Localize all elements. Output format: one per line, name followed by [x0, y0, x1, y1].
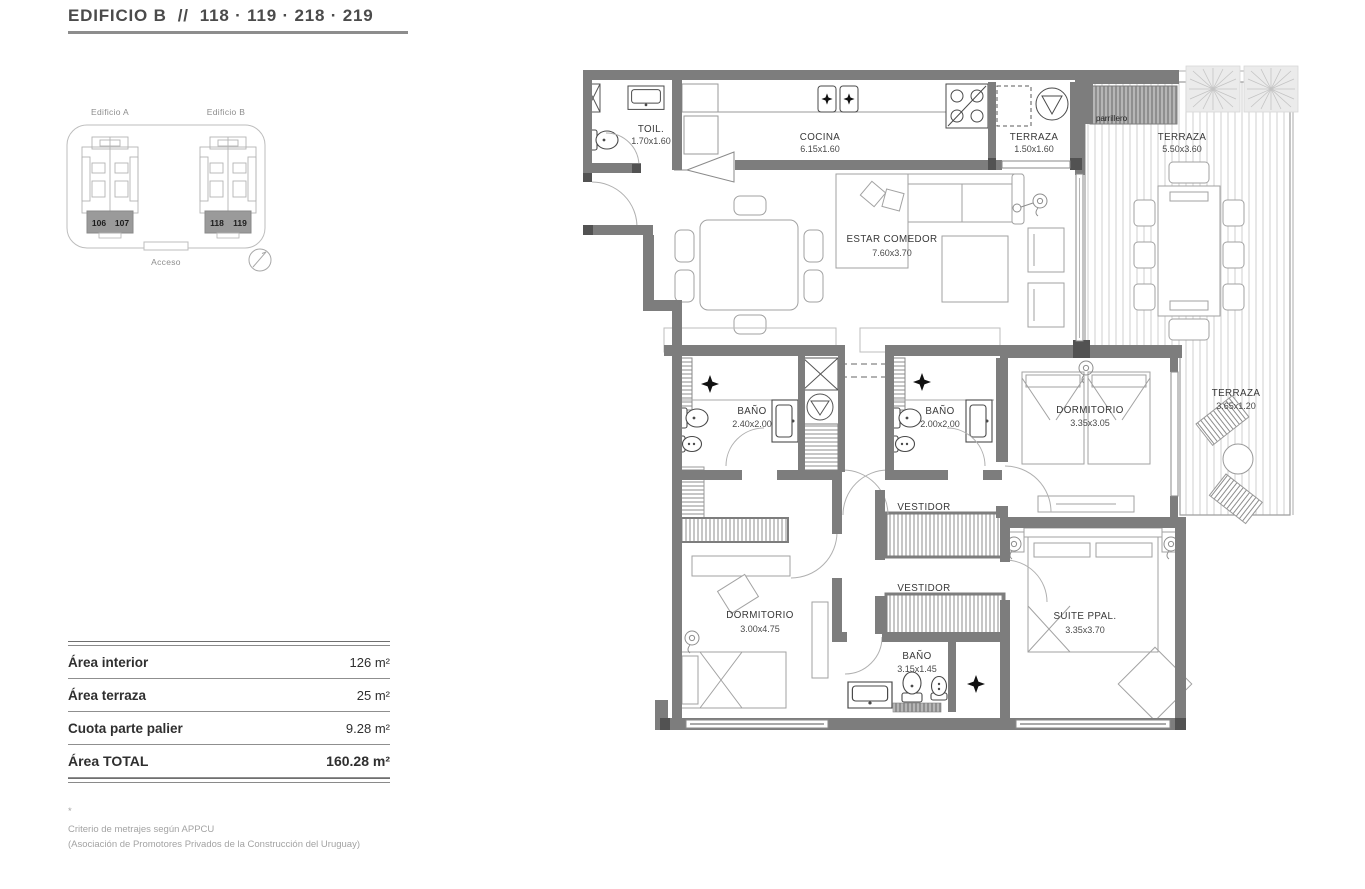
building-b-footprint: 118 119 [200, 137, 256, 238]
room-dims: 1.50x1.60 [1014, 144, 1054, 154]
floorplan-sheet: EDIFICIO B // 118 · 119 · 218 · 219 Edif… [0, 0, 1365, 889]
room-label: BAÑO [902, 651, 931, 662]
wall-lamp-icon [685, 631, 699, 653]
north-compass-icon [249, 249, 271, 271]
building-a-label: Edificio A [91, 107, 129, 117]
room-label: SUITE PPAL. [1053, 611, 1116, 622]
title-rule [68, 31, 408, 34]
footnote-line2: (Asociación de Promotores Privados de la… [68, 838, 390, 852]
room-label: TERRAZA [1010, 132, 1059, 143]
cooktop-icons [818, 84, 988, 128]
room-dims: 3.35x3.70 [1065, 625, 1105, 635]
room-label: DORMITORIO [1056, 405, 1124, 416]
bedroom1-furniture [676, 467, 828, 708]
parrillero-label: parrillero [1096, 114, 1128, 123]
closet-vestidor-1 [886, 513, 1004, 557]
area-row-value: 25 m² [357, 688, 390, 703]
armchairs [1028, 228, 1064, 327]
site-locator-diagram: Edificio A Edificio B 106 107 118 119 Ac… [62, 100, 292, 285]
area-row-value: 9.28 m² [346, 721, 390, 736]
room-dims: 3.65x1.20 [1216, 401, 1256, 411]
room-dims: 1.70x1.60 [631, 136, 671, 146]
unit-number: 118 [210, 218, 224, 228]
area-row-label: Área interior [68, 655, 148, 670]
access-label: Acceso [151, 257, 181, 267]
dining-set [675, 196, 823, 334]
room-label: ESTAR COMEDOR [846, 234, 937, 245]
bedroom2-furniture [1022, 372, 1150, 512]
table-row: Área terraza 25 m² [68, 679, 390, 712]
page-title: EDIFICIO B // 118 · 119 · 218 · 219 [68, 6, 374, 26]
bath3-fixtures [848, 672, 985, 712]
room-label: VESTIDOR [897, 502, 950, 513]
tree-icon [1244, 66, 1298, 112]
room-label: COCINA [800, 132, 841, 143]
unit-number: 106 [92, 218, 106, 228]
bath1-fixtures [676, 358, 798, 452]
room-dims: 6.15x1.60 [800, 144, 840, 154]
room-label: DORMITORIO [726, 610, 794, 621]
kitchen-door [674, 152, 734, 182]
room-label: TERRAZA [1212, 388, 1261, 399]
footnote: * Criterio de metrajes según APPCU (Asoc… [68, 805, 390, 852]
room-dims: 3.15x1.45 [897, 664, 937, 674]
room-dims: 2.00x2.00 [920, 419, 960, 429]
area-table: Área interior 126 m² Área terraza 25 m² … [68, 641, 390, 852]
stove-icon [946, 84, 988, 128]
footnote-mark: * [68, 805, 390, 819]
area-row-label: Cuota parte palier [68, 721, 183, 736]
area-row-label: Área terraza [68, 688, 146, 703]
room-label: TOIL. [638, 124, 664, 135]
room-dims: 7.60x3.70 [872, 248, 912, 258]
table-row-total: Área TOTAL 160.28 m² [68, 745, 390, 778]
tree-icon [1186, 66, 1240, 112]
area-row-value: 160.28 m² [326, 753, 390, 769]
room-label: BAÑO [925, 406, 954, 417]
room-dims: 5.50x3.60 [1162, 144, 1202, 154]
room-dims: 3.00x4.75 [740, 624, 780, 634]
building-a-footprint: 106 107 [82, 137, 138, 238]
room-dims: 3.35x3.05 [1070, 418, 1110, 428]
access-path [144, 242, 188, 250]
bath2-fixtures [889, 358, 994, 452]
footnote-line1: Criterio de metrajes según APPCU [68, 823, 390, 837]
service-terrace-equipment [997, 86, 1068, 126]
area-row-value: 126 m² [350, 655, 390, 670]
room-label: BAÑO [737, 406, 766, 417]
closet-vestidor-2 [886, 594, 1004, 638]
room-label: VESTIDOR [897, 583, 950, 594]
unit-number: 107 [115, 218, 129, 228]
building-b-label: Edificio B [207, 107, 245, 117]
table-bottom-rule [68, 778, 390, 783]
floor-plan: TOIL. 1.70x1.60 COCINA 6.15x1.60 TERRAZA… [578, 62, 1300, 740]
area-row-label: Área TOTAL [68, 753, 148, 769]
table-row: Área interior 126 m² [68, 646, 390, 679]
coffee-table [942, 236, 1008, 302]
room-dims: 2.40x2.00 [732, 419, 772, 429]
unit-number: 119 [233, 218, 247, 228]
room-label: TERRAZA [1158, 132, 1207, 143]
table-row: Cuota parte palier 9.28 m² [68, 712, 390, 745]
